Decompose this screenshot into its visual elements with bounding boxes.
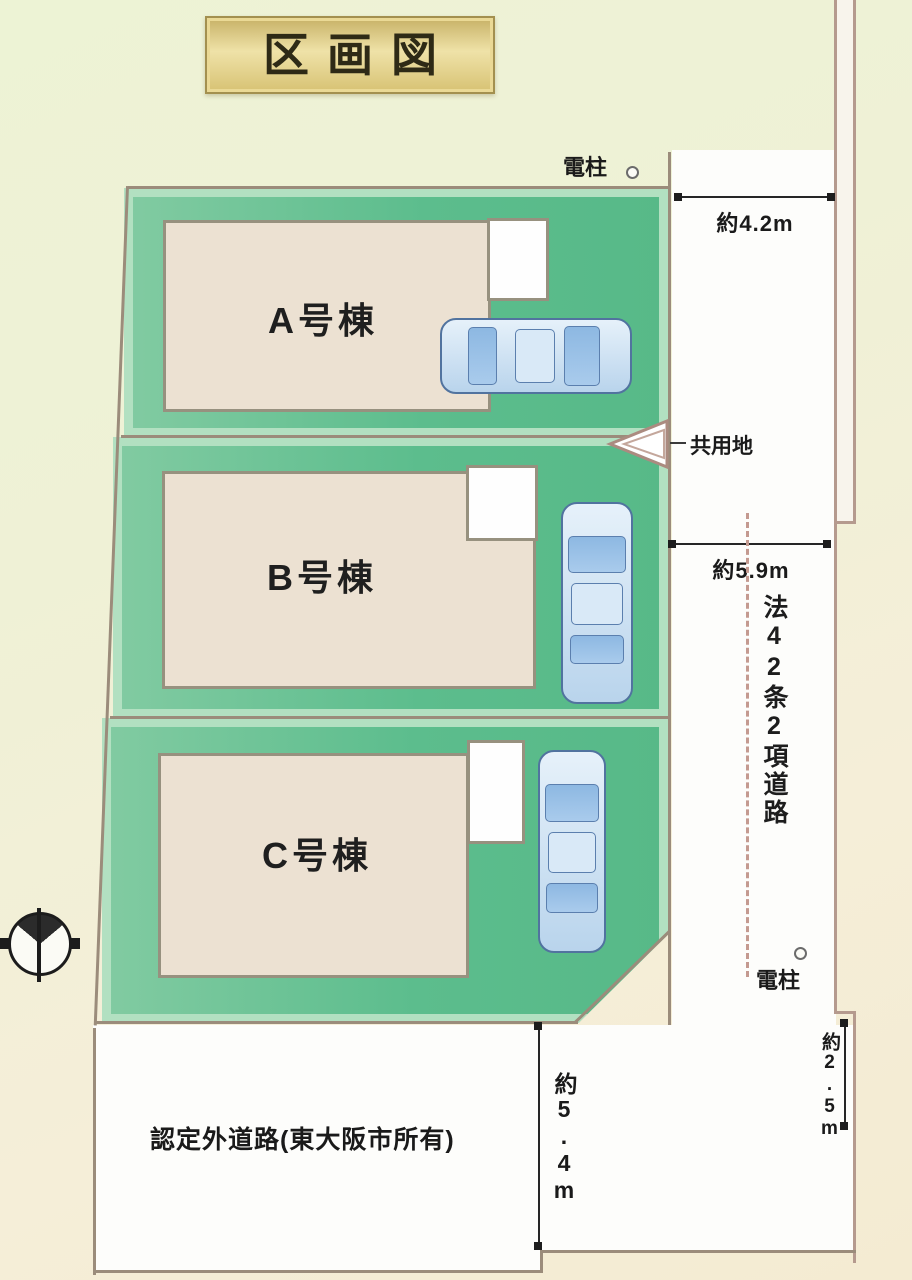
car-roof: [515, 329, 555, 384]
dimension-endpoint: [534, 1022, 542, 1030]
road-centerline-dashed: [746, 513, 749, 977]
building-a-label: A号棟: [238, 303, 408, 339]
plot-bottom-boundary-line: [96, 1021, 578, 1024]
building-b-porch: [466, 465, 538, 541]
car-rear-window: [546, 883, 597, 913]
dimension-endpoint: [823, 540, 831, 548]
page-title: 区画図: [245, 32, 455, 78]
south-road-left-edge-line: [93, 1028, 96, 1275]
east-road-outer-cap-line: [834, 521, 856, 524]
dimension-line-east-bottom: [844, 1022, 846, 1128]
plot-plan-canvas: A号棟 B号棟 C号棟 共用地 約4.2m 約5.9m 法42条2項道路: [0, 0, 912, 1280]
plot-top-boundary-line: [128, 186, 668, 189]
south-road-step-line: [540, 1250, 543, 1273]
dimension-line-east-mid: [672, 543, 828, 545]
shared-area-arrow-icon: [606, 418, 670, 470]
utility-pole-icon: [794, 947, 807, 960]
east-road-outer-edge-line: [853, 0, 856, 524]
building-a-porch: [487, 218, 549, 301]
dimension-label-east-bottom: 約2.5m: [816, 1032, 843, 1140]
dimension-endpoint: [668, 540, 676, 548]
utility-pole-bottom-label: 電柱: [756, 963, 800, 995]
east-road-right-edge-line: [834, 0, 837, 1014]
east-road-name-label: 法42条2項道路: [756, 594, 792, 827]
car-rear-window: [570, 635, 624, 665]
dimension-endpoint: [534, 1242, 542, 1250]
utility-pole-top-label: 電柱: [563, 150, 607, 182]
dimension-endpoint: [827, 193, 835, 201]
dimension-line-south: [538, 1026, 540, 1246]
lot-ab-boundary-line: [121, 435, 668, 438]
building-b-label: B号棟: [237, 560, 407, 596]
car-roof: [548, 832, 597, 874]
car-windshield: [568, 536, 625, 574]
car-icon: [440, 318, 632, 394]
car-rear-window: [468, 327, 496, 385]
car-roof: [571, 583, 623, 625]
east-road-outer-strip: [836, 0, 853, 522]
car-icon: [561, 502, 633, 704]
building-c-label: C号棟: [232, 838, 402, 874]
utility-pole-icon: [626, 166, 639, 179]
south-road-bottom-left-line: [93, 1270, 542, 1273]
dimension-endpoint: [840, 1019, 848, 1027]
east-road-left-edge-line: [668, 152, 671, 1025]
dimension-label-south: 約5.4m: [547, 1072, 581, 1204]
shared-area-tick-line: [670, 442, 686, 444]
car-windshield: [564, 326, 600, 387]
east-road-surface: [672, 150, 836, 1025]
south-road-bottom-right-line: [540, 1250, 856, 1253]
dimension-label-east-top: 約4.2m: [690, 206, 820, 238]
east-road-lower-right-edge-line: [853, 1011, 856, 1263]
dimension-label-east-mid: 約5.9m: [686, 553, 816, 585]
dimension-endpoint: [674, 193, 682, 201]
lot-bc-boundary-line: [110, 716, 668, 719]
title-box: 区画図: [205, 16, 495, 94]
car-icon: [538, 750, 606, 953]
south-road-name-label: 認定外道路(東大阪市所有): [150, 1120, 455, 1156]
shared-area-label: 共用地: [690, 430, 753, 460]
compass-icon: [37, 908, 41, 982]
car-windshield: [545, 784, 599, 822]
dimension-line-east-top: [678, 196, 832, 198]
building-c-porch: [467, 740, 525, 844]
